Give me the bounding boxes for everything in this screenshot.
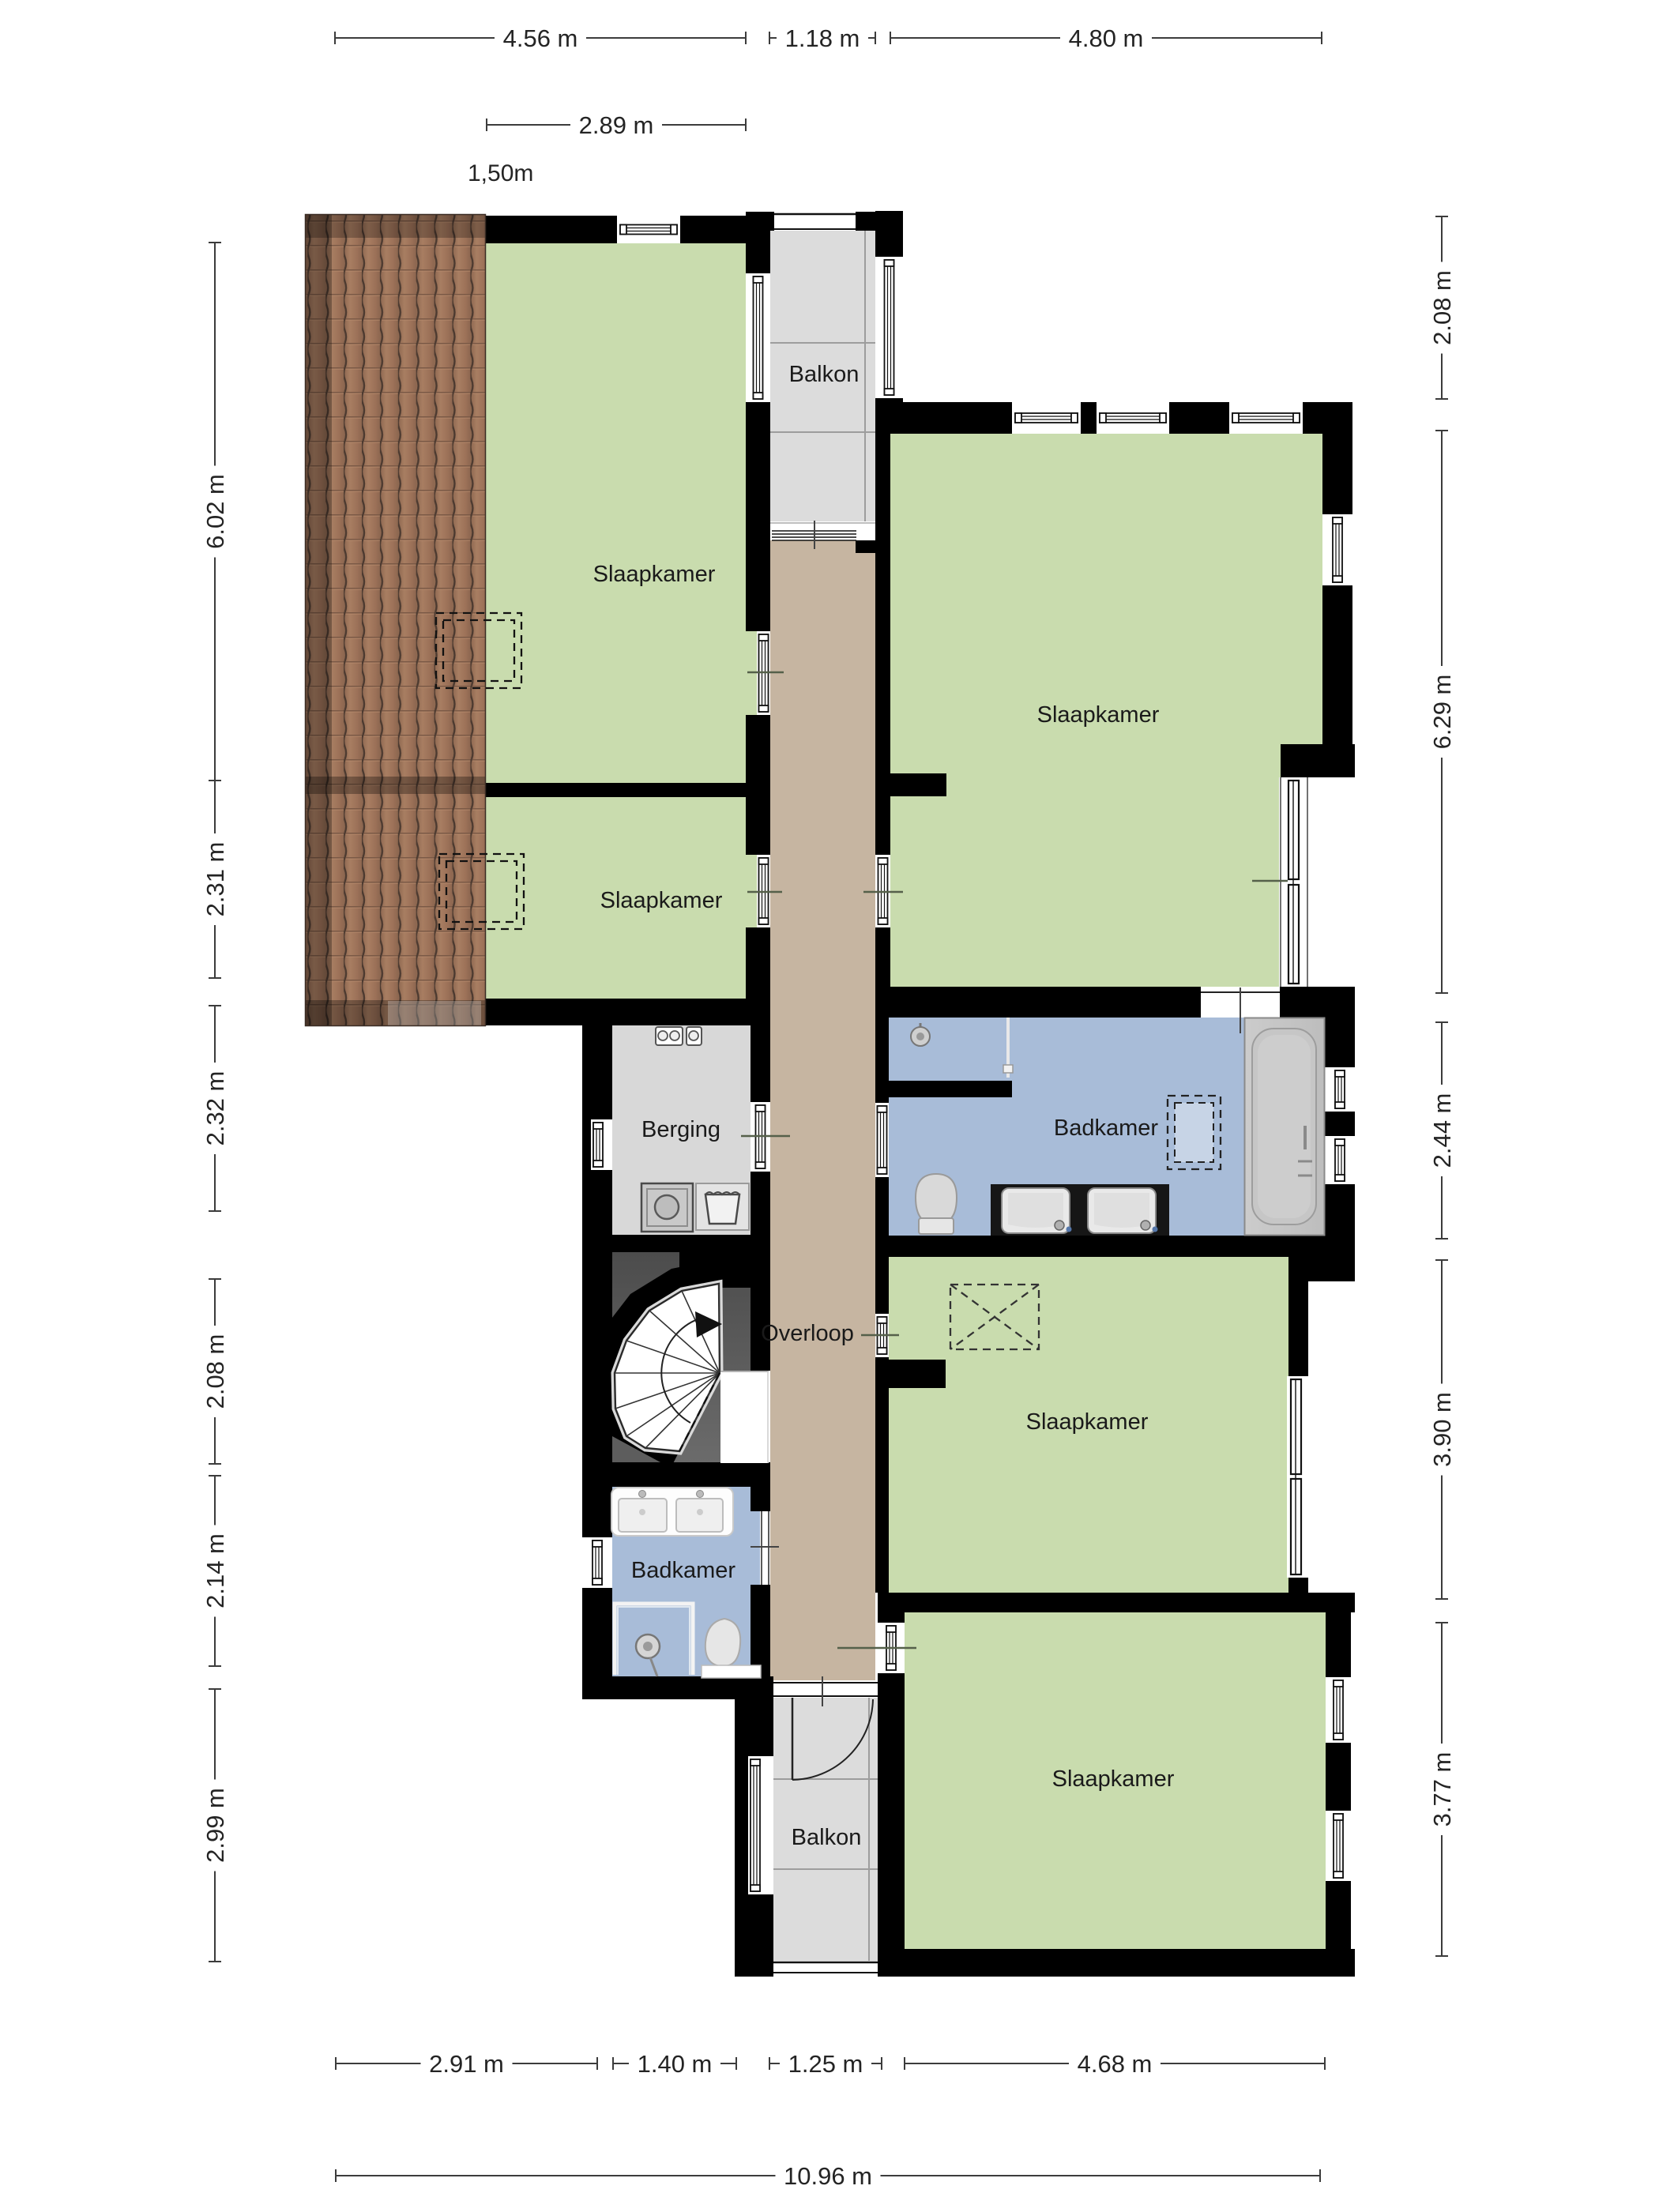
svg-text:1.18 m: 1.18 m: [785, 24, 860, 52]
svg-text:Slaapkamer: Slaapkamer: [1052, 1766, 1175, 1792]
svg-text:2.31 m: 2.31 m: [201, 842, 229, 917]
svg-text:1.40 m: 1.40 m: [638, 2050, 713, 2078]
svg-text:Berging: Berging: [641, 1117, 720, 1142]
svg-text:Slaapkamer: Slaapkamer: [1037, 702, 1160, 728]
svg-text:1,50m: 1,50m: [468, 160, 533, 186]
svg-text:3.90 m: 3.90 m: [1428, 1392, 1456, 1467]
svg-text:Overloop: Overloop: [761, 1321, 854, 1346]
svg-text:10.96 m: 10.96 m: [784, 2162, 872, 2190]
svg-text:Slaapkamer: Slaapkamer: [600, 888, 723, 913]
svg-text:2.08 m: 2.08 m: [1428, 270, 1456, 345]
svg-text:1.25 m: 1.25 m: [788, 2050, 863, 2078]
svg-text:6.02 m: 6.02 m: [201, 474, 229, 549]
svg-text:Balkon: Balkon: [789, 362, 860, 387]
svg-text:2.32 m: 2.32 m: [201, 1071, 229, 1146]
svg-text:Slaapkamer: Slaapkamer: [1026, 1409, 1149, 1435]
svg-text:Slaapkamer: Slaapkamer: [593, 562, 716, 587]
svg-text:3.77 m: 3.77 m: [1428, 1752, 1456, 1827]
svg-text:Badkamer: Badkamer: [1054, 1115, 1159, 1141]
svg-text:2.14 m: 2.14 m: [201, 1533, 229, 1608]
svg-text:2.99 m: 2.99 m: [201, 1788, 229, 1863]
svg-text:2.44 m: 2.44 m: [1428, 1093, 1456, 1168]
svg-text:6.29 m: 6.29 m: [1428, 675, 1456, 750]
svg-text:2.89 m: 2.89 m: [579, 111, 654, 139]
svg-text:4.68 m: 4.68 m: [1078, 2050, 1153, 2078]
svg-text:4.80 m: 4.80 m: [1069, 24, 1144, 52]
svg-text:Balkon: Balkon: [792, 1825, 862, 1850]
svg-text:4.56 m: 4.56 m: [503, 24, 578, 52]
svg-text:2.91 m: 2.91 m: [429, 2050, 504, 2078]
svg-text:Badkamer: Badkamer: [631, 1558, 736, 1583]
svg-text:2.08 m: 2.08 m: [201, 1334, 229, 1409]
